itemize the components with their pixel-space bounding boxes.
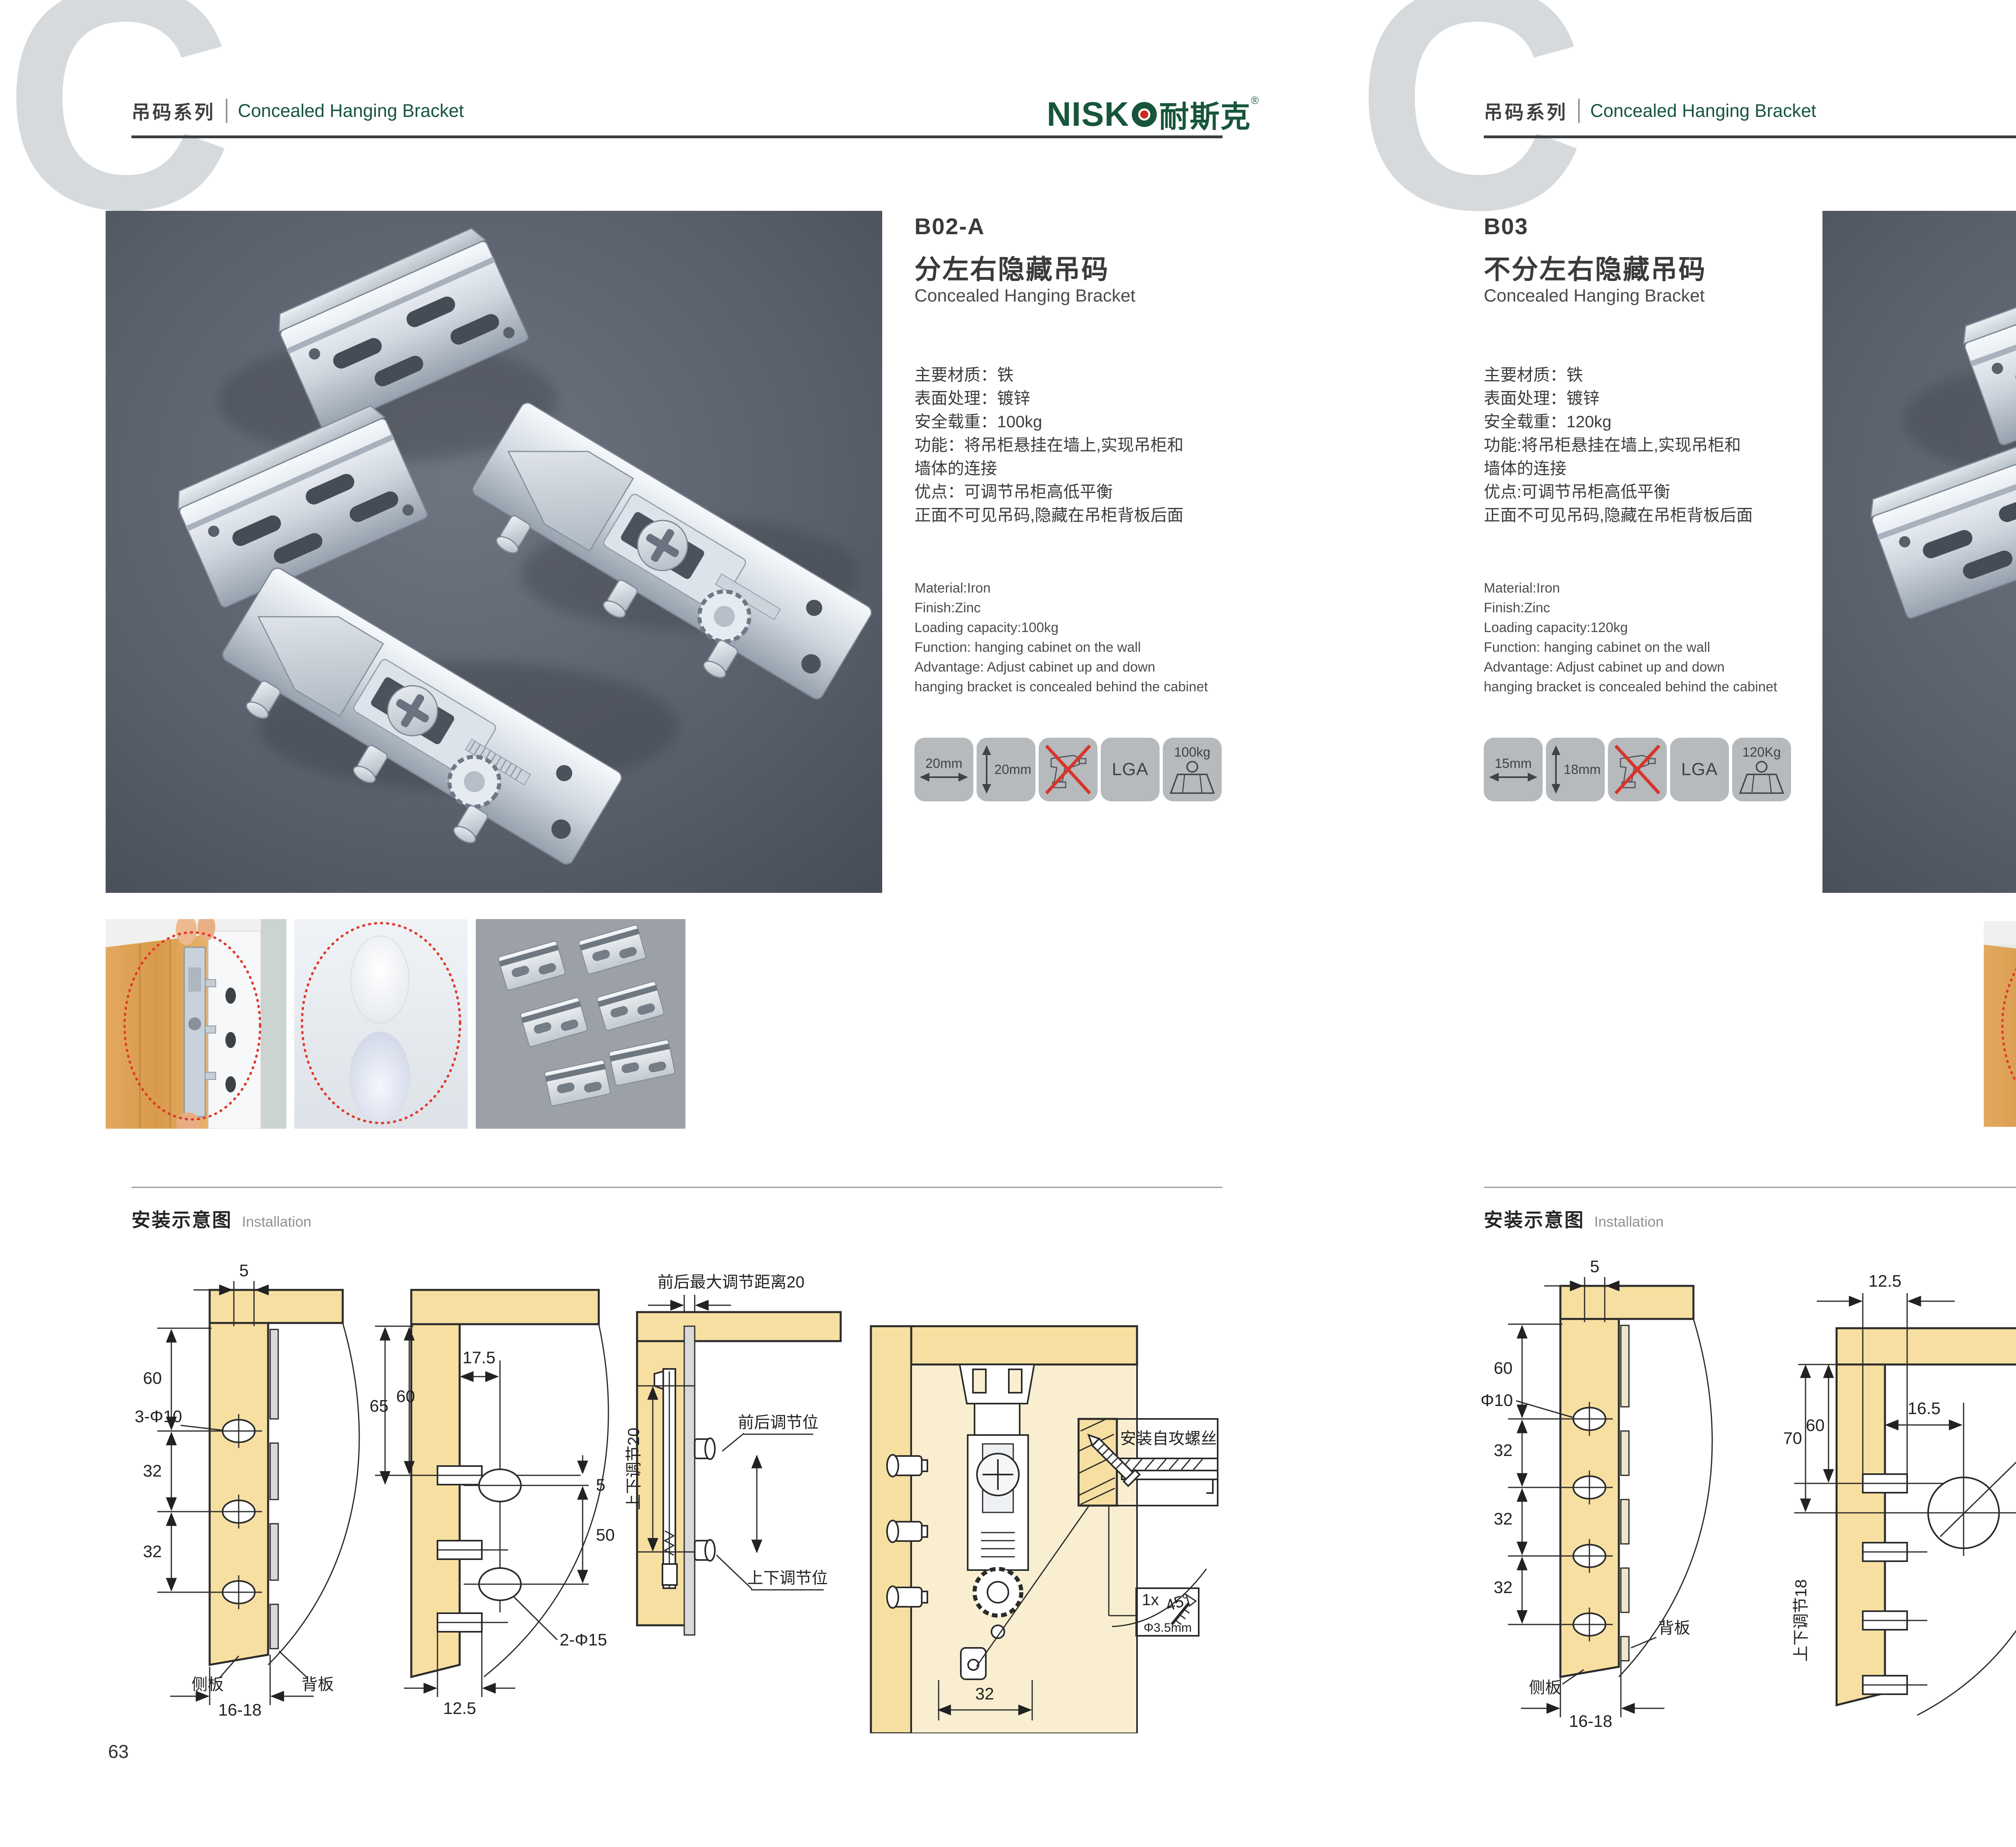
spec-line: Function: hanging cabinet on the wall <box>914 638 1208 657</box>
spec-line: hanging bracket is concealed behind the … <box>1484 677 1777 697</box>
label-45deg: 45° <box>1163 1590 1192 1615</box>
spec-line: Loading capacity:120kg <box>1484 618 1777 638</box>
diagram-side-section: 5 60 Φ10 32 32 32 背板 侧板 16-18 <box>1476 1258 1758 1733</box>
specs-cn: 主要材质：铁 表面处理：镀锌 安全载重：120kg 功能:将吊柜悬挂在墙上,实现… <box>1484 363 1753 527</box>
install-title-cn: 安装示意图 <box>1484 1204 1585 1232</box>
spec-line: 安全载重：100kg <box>914 410 1183 433</box>
thumbnail-parts <box>476 919 685 1129</box>
dim-32: 32 <box>143 1461 162 1480</box>
icon-tile-load: 120Kg <box>1732 738 1791 801</box>
dim-70: 70 <box>1783 1429 1802 1448</box>
spec-line: 墙体的连接 <box>1484 457 1753 480</box>
dim-65: 65 <box>370 1396 389 1415</box>
dim-60: 60 <box>1494 1358 1513 1377</box>
spec-line: 表面处理：镀锌 <box>1484 387 1753 410</box>
icon-tile-no-drill <box>1039 738 1098 801</box>
spec-line: 正面不可见吊码,隐藏在吊柜背板后面 <box>914 503 1183 527</box>
spec-line: Function: hanging cabinet on the wall <box>1484 638 1777 657</box>
dim-60: 60 <box>396 1387 415 1406</box>
label-back-panel: 背板 <box>302 1676 334 1693</box>
diagram-hole-layout: 65 60 17.5 5 50 2-Φ15 12.5 <box>363 1262 621 1717</box>
label-side-panel: 侧板 <box>1529 1679 1561 1697</box>
icon-tile-load: 100kg <box>1163 738 1222 801</box>
cert-label: LGA <box>1681 759 1718 780</box>
load-value: 120Kg <box>1742 745 1781 760</box>
spec-line: Material:Iron <box>914 578 1208 598</box>
dim-32: 32 <box>1494 1509 1513 1528</box>
dim-32: 32 <box>1494 1578 1513 1597</box>
dim-vertical-adjust: 上下调节20 <box>625 1428 643 1510</box>
dim-top: 5 <box>1590 1258 1599 1276</box>
width-value: 20mm <box>925 756 962 771</box>
feature-icons: 15mm 18mm LGA 120Kg <box>1484 738 1791 801</box>
height-value: 18mm <box>1564 762 1601 777</box>
install-title-en: Installation <box>1594 1213 1664 1230</box>
product-info: B03 不分左右隐藏吊码 Concealed Hanging Bracket 主… <box>1484 211 1802 896</box>
page-header: 吊码系列 Concealed Hanging Bracket <box>1484 97 1816 125</box>
dim-17-5: 17.5 <box>462 1348 496 1367</box>
install-divider <box>131 1187 1223 1188</box>
specs-en: Material:Iron Finish:Zinc Loading capaci… <box>914 578 1208 697</box>
header-rule <box>131 135 1223 138</box>
dim-front-back: 前后最大调节距离20 <box>658 1273 805 1291</box>
load-value: 100kg <box>1174 745 1210 760</box>
dim-32: 32 <box>143 1542 162 1561</box>
catalog-page-63: C 吊码系列 Concealed Hanging Bracket NISK 耐斯… <box>0 0 1352 1847</box>
main-product-photo <box>106 211 882 893</box>
header-rule <box>1484 135 2016 138</box>
dim-32: 32 <box>1494 1441 1513 1460</box>
label-back-panel: 背板 <box>1658 1619 1690 1637</box>
load-weight-icon <box>1733 760 1790 795</box>
page-header: 吊码系列 Concealed Hanging Bracket <box>131 97 464 125</box>
diagram-hole-layout: 12.5 60 70 10 Ø 25 16.5 上下调节18 <box>1782 1258 2016 1733</box>
product-title-cn: 分左右隐藏吊码 <box>914 248 1109 287</box>
page-number: 63 <box>108 1741 129 1762</box>
vertical-arrow-icon <box>1550 745 1562 794</box>
dim-bottom: 16-18 <box>218 1700 261 1717</box>
specs-cn: 主要材质：铁 表面处理：镀锌 安全载重：100kg 功能：将吊柜悬挂在墙上,实现… <box>914 363 1183 527</box>
catalog-page-64: C 吊码系列 Concealed Hanging Bracket NISK 耐斯… <box>1352 0 2016 1847</box>
icon-tile-height: 18mm <box>1546 738 1605 801</box>
dim-32: 32 <box>975 1684 994 1703</box>
screw-qty: 1x <box>1142 1591 1159 1609</box>
spec-line: 优点：可调节吊柜高低平衡 <box>914 480 1183 503</box>
header-divider <box>226 99 227 123</box>
product-title-cn: 不分左右隐藏吊码 <box>1484 248 1706 287</box>
height-value: 20mm <box>994 762 1031 777</box>
vertical-arrow-icon <box>981 745 993 794</box>
dim-50: 50 <box>596 1525 615 1544</box>
thumbnail-installed <box>1984 919 2016 1129</box>
series-title-cn: 吊码系列 <box>1484 97 1568 125</box>
back-panel-strip <box>270 1329 278 1649</box>
width-value: 15mm <box>1495 756 1532 771</box>
product-title-en: Concealed Hanging Bracket <box>1484 286 1705 306</box>
spec-line: Finish:Zinc <box>914 598 1208 618</box>
dim-12-5: 12.5 <box>443 1699 476 1717</box>
dim-vertical-adjust: 上下调节18 <box>1792 1579 1810 1662</box>
spec-line: Advantage: Adjust cabinet up and down <box>914 657 1208 677</box>
spec-line: 主要材质：铁 <box>914 363 1183 387</box>
series-title-en: Concealed Hanging Bracket <box>238 100 464 121</box>
header-divider <box>1578 99 1580 123</box>
icon-tile-height: 20mm <box>977 738 1035 801</box>
icon-tile-cert: LGA <box>1670 738 1729 801</box>
spec-line: 功能：将吊柜悬挂在墙上,实现吊柜和 <box>914 433 1183 457</box>
screw-detail: 安装自攻螺丝 <box>1079 1419 1218 1506</box>
thumbnail-concealed-view <box>294 919 468 1129</box>
back-panel-strip <box>1621 1325 1629 1661</box>
series-title-cn: 吊码系列 <box>131 97 215 125</box>
icon-tile-no-drill <box>1608 738 1667 801</box>
icon-tile-width: 15mm <box>1484 738 1543 801</box>
logo-o-icon <box>1132 102 1157 127</box>
diagram-side-section: 5 60 3-Φ10 32 32 侧板 背板 16-18 <box>133 1262 367 1717</box>
spec-line: 优点:可调节吊柜高低平衡 <box>1484 480 1753 503</box>
horizontal-arrow-icon <box>1489 771 1537 783</box>
install-header: 安装示意图 Installation <box>131 1204 311 1232</box>
logo-text-en: NISK <box>1047 95 1129 134</box>
cert-label: LGA <box>1112 759 1148 780</box>
spec-line: 主要材质：铁 <box>1484 363 1753 387</box>
main-product-photo <box>1822 211 2016 893</box>
diagram-mounted-bracket: 32 安装自攻螺丝 45° 1x Φ3.5 <box>859 1270 1222 1733</box>
dim-top: 5 <box>239 1262 248 1280</box>
thumbnail-installed <box>106 919 286 1129</box>
label-self-tapping-screw: 安装自攻螺丝 <box>1120 1430 1217 1448</box>
icon-tile-cert: LGA <box>1101 738 1160 801</box>
logo-red-dot <box>1140 110 1148 119</box>
spec-line: Loading capacity:100kg <box>914 618 1208 638</box>
icon-tile-width: 20mm <box>914 738 973 801</box>
series-title-en: Concealed Hanging Bracket <box>1590 100 1816 121</box>
spec-line: Finish:Zinc <box>1484 598 1777 618</box>
load-weight-icon <box>1164 760 1220 795</box>
spec-line: hanging bracket is concealed behind the … <box>914 677 1208 697</box>
product-info: B02-A 分左右隐藏吊码 Concealed Hanging Bracket … <box>914 211 1233 896</box>
spec-line: 功能:将吊柜悬挂在墙上,实现吊柜和 <box>1484 433 1753 457</box>
install-divider <box>1484 1187 2016 1188</box>
thumbnail-row <box>106 919 685 1129</box>
horizontal-arrow-icon <box>920 771 968 783</box>
dim-hole: 2-Φ15 <box>560 1630 607 1649</box>
dim-hole: 3-Φ10 <box>135 1407 182 1426</box>
specs-en: Material:Iron Finish:Zinc Loading capaci… <box>1484 578 1777 697</box>
spec-line: 安全载重：120kg <box>1484 410 1753 433</box>
dim-12-5: 12.5 <box>1868 1271 1901 1290</box>
spec-line: 表面处理：镀锌 <box>914 387 1183 410</box>
product-code: B02-A <box>914 213 985 240</box>
spec-line: 正面不可见吊码,隐藏在吊柜背板后面 <box>1484 503 1753 527</box>
install-title-cn: 安装示意图 <box>131 1204 232 1232</box>
no-drill-icon <box>1614 744 1661 795</box>
screw-diameter: Φ3.5mm <box>1143 1620 1191 1635</box>
spec-line: Advantage: Adjust cabinet up and down <box>1484 657 1777 677</box>
spec-line: Material:Iron <box>1484 578 1777 598</box>
label-side-panel: 侧板 <box>192 1676 224 1693</box>
diagram-adjustment: 前后最大调节距离20 前后调节位 上下调节位 上下调节20 <box>623 1270 849 1673</box>
product-code: B03 <box>1484 213 1529 240</box>
registered-mark: ® <box>1251 94 1259 107</box>
feature-icons: 20mm 20mm LGA 100kg <box>914 738 1222 801</box>
install-header: 安装示意图 Installation <box>1484 1204 1664 1232</box>
label-front-back-adjust: 前后调节位 <box>738 1414 818 1431</box>
dim-16-5: 16.5 <box>1908 1399 1941 1418</box>
dim-60: 60 <box>1806 1416 1825 1435</box>
label-up-down-adjust: 上下调节位 <box>747 1569 828 1587</box>
logo-text-cn: 耐斯克 <box>1159 93 1251 136</box>
dim-hole: Φ10 <box>1481 1391 1513 1410</box>
thumbnail-row <box>1984 919 2016 1129</box>
dim-60: 60 <box>143 1369 162 1387</box>
install-title-en: Installation <box>242 1213 311 1230</box>
screw-kit-box: 1x Φ3.5mm <box>1136 1588 1199 1636</box>
product-title-en: Concealed Hanging Bracket <box>914 286 1135 306</box>
dim-5: 5 <box>596 1475 605 1494</box>
spec-line: 墙体的连接 <box>914 457 1183 480</box>
nisko-logo: NISK 耐斯克 ® <box>1047 93 1259 136</box>
no-drill-icon <box>1045 744 1091 795</box>
dim-bottom: 16-18 <box>1569 1712 1612 1731</box>
